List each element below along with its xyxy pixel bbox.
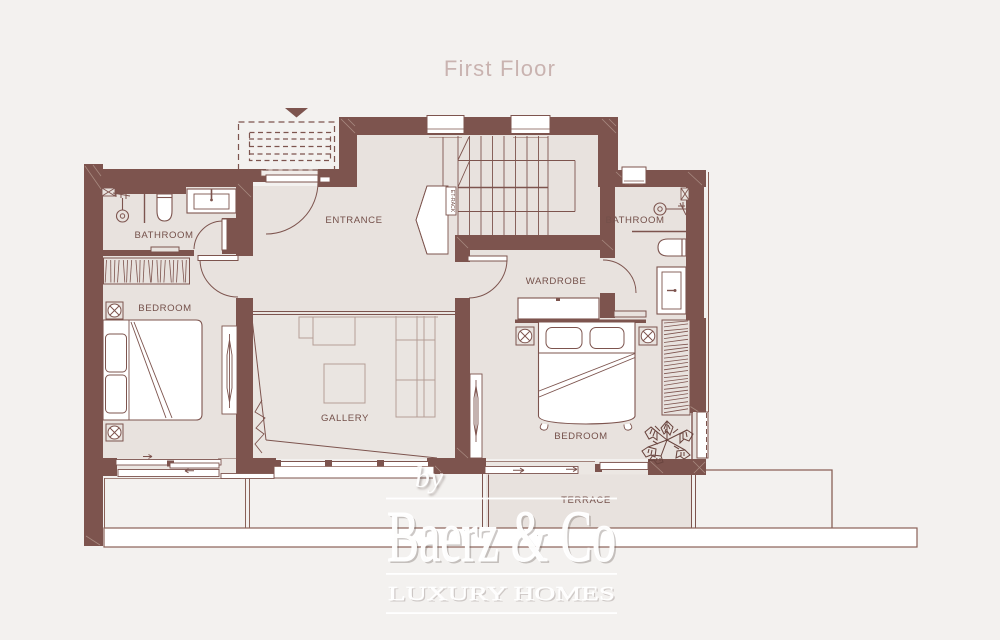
svg-text:GALLERY: GALLERY — [321, 413, 369, 424]
svg-text:by: by — [415, 461, 444, 494]
svg-text:BATHROOM: BATHROOM — [134, 230, 193, 241]
svg-text:BEDROOM: BEDROOM — [554, 431, 607, 442]
svg-text:First Floor: First Floor — [444, 56, 556, 81]
svg-text:ENTRANCE: ENTRANCE — [325, 215, 382, 226]
svg-text:LUXURY HOMES: LUXURY HOMES — [388, 583, 615, 605]
svg-text:WARDROBE: WARDROBE — [526, 276, 587, 287]
svg-text:BATHROOM: BATHROOM — [605, 215, 664, 226]
svg-text:ET-RACK: ET-RACK — [449, 190, 455, 213]
svg-text:BEDROOM: BEDROOM — [138, 303, 191, 314]
svg-text:Baerz & Co: Baerz & Co — [387, 496, 616, 577]
